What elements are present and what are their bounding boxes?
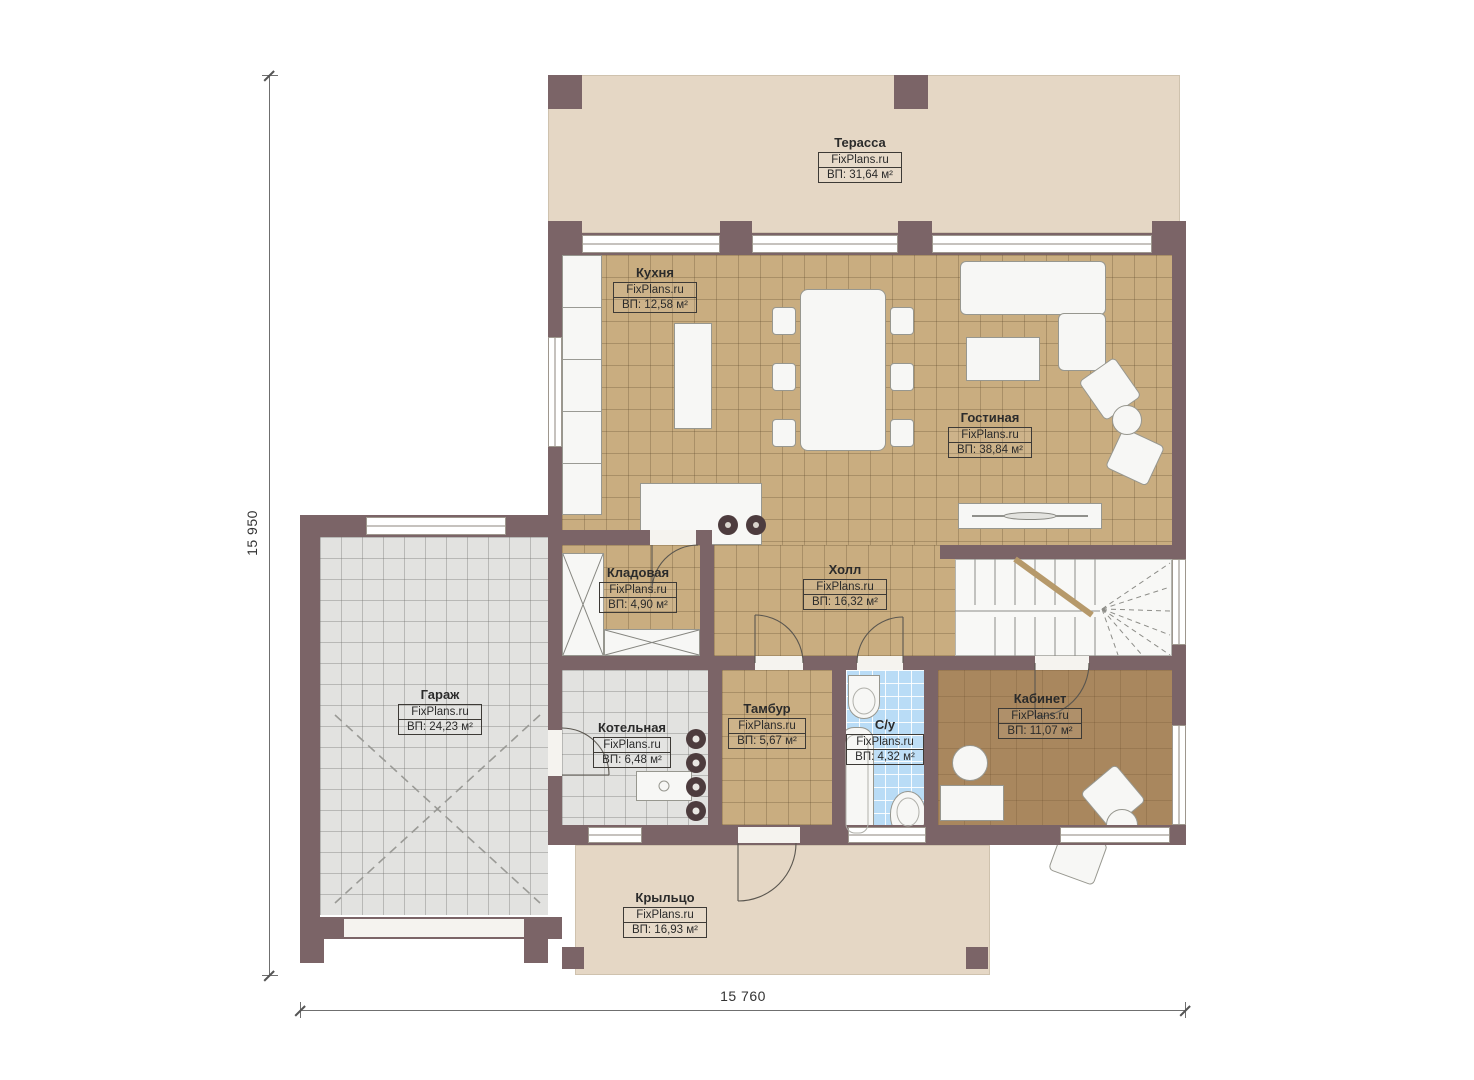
room-name: Терасса xyxy=(834,135,886,150)
room-area: ВП: 31,64 м² xyxy=(819,168,901,182)
pillar xyxy=(966,947,988,969)
room-name: Гостиная xyxy=(961,410,1020,425)
dining-table xyxy=(800,289,886,451)
brand-watermark: FixPlans.ru xyxy=(804,580,886,595)
pillar xyxy=(720,221,752,255)
garage-door-opening xyxy=(344,919,524,937)
kitchen-island xyxy=(674,323,712,429)
wall xyxy=(300,515,320,939)
dimension-label-left: 15 950 xyxy=(244,503,260,563)
dimension-line-left xyxy=(269,75,270,975)
room-area: ВП: 4,32 м² xyxy=(847,750,923,764)
pillar xyxy=(898,221,932,255)
door-opening xyxy=(548,730,562,776)
room-name: Котельная xyxy=(598,720,666,735)
room-label-terrace: Терасса FixPlans.ru ВП: 31,64 м² xyxy=(780,135,940,183)
brand-watermark: FixPlans.ru xyxy=(594,738,670,753)
dining-chair xyxy=(890,307,914,335)
stairs xyxy=(955,559,1172,656)
dining-chair xyxy=(772,419,796,447)
room-label-living: Гостиная FixPlans.ru ВП: 38,84 м² xyxy=(915,410,1065,458)
dining-chair xyxy=(890,363,914,391)
room-area: ВП: 24,23 м² xyxy=(399,720,481,734)
pillar xyxy=(548,221,582,255)
coffee-table xyxy=(966,337,1040,381)
room-label-pantry: Кладовая FixPlans.ru ВП: 4,90 м² xyxy=(568,565,708,613)
window xyxy=(752,235,898,253)
dining-chair xyxy=(772,363,796,391)
dining-chair xyxy=(890,419,914,447)
brand-watermark: FixPlans.ru xyxy=(949,428,1031,443)
brand-watermark: FixPlans.ru xyxy=(399,705,481,720)
room-name: Кабинет xyxy=(1014,691,1067,706)
door-opening xyxy=(755,656,803,670)
room-name: Гараж xyxy=(421,687,460,702)
room-label-bathroom: С/у FixPlans.ru ВП: 4,32 м² xyxy=(828,717,942,765)
window xyxy=(548,337,562,447)
window xyxy=(932,235,1152,253)
door-opening xyxy=(857,656,903,670)
room-area: ВП: 16,93 м² xyxy=(624,923,706,937)
pillar xyxy=(562,947,584,969)
brand-watermark: FixPlans.ru xyxy=(624,908,706,923)
room-area: ВП: 5,67 м² xyxy=(729,734,805,748)
room-name: Кладовая xyxy=(607,565,669,580)
brand-watermark: FixPlans.ru xyxy=(847,735,923,750)
room-name: Кухня xyxy=(636,265,674,280)
wall xyxy=(940,545,1186,559)
pillar xyxy=(300,939,324,963)
floor-plan: Терасса FixPlans.ru ВП: 31,64 м² Кухня F… xyxy=(300,75,1186,975)
window xyxy=(366,517,506,535)
brand-watermark: FixPlans.ru xyxy=(819,153,901,168)
dimension-line-bottom xyxy=(300,1010,1186,1011)
brand-watermark: FixPlans.ru xyxy=(729,719,805,734)
window xyxy=(582,235,720,253)
room-name: С/у xyxy=(875,717,895,732)
desk xyxy=(940,785,1004,821)
room-area: ВП: 16,32 м² xyxy=(804,595,886,609)
window xyxy=(1172,559,1186,645)
wardrobe-hatch xyxy=(604,629,700,656)
room-area: ВП: 4,90 м² xyxy=(600,598,676,612)
pillar xyxy=(1152,221,1186,255)
toilet xyxy=(848,675,880,719)
room-label-vestibule: Тамбур FixPlans.ru ВП: 5,67 м² xyxy=(702,701,832,749)
tv-console xyxy=(958,503,1102,529)
dimension-label-bottom: 15 760 xyxy=(713,988,773,1004)
room-name: Холл xyxy=(829,562,862,577)
room-label-hall: Холл FixPlans.ru ВП: 16,32 м² xyxy=(770,562,920,610)
room-area: ВП: 11,07 м² xyxy=(999,724,1080,738)
sofa xyxy=(960,261,1106,315)
pillar xyxy=(894,75,928,109)
window xyxy=(848,827,926,843)
brand-watermark: FixPlans.ru xyxy=(999,709,1080,724)
side-table xyxy=(1112,405,1142,435)
room-label-garage: Гараж FixPlans.ru ВП: 24,23 м² xyxy=(365,687,515,735)
brand-watermark: FixPlans.ru xyxy=(600,583,676,598)
room-area: ВП: 12,58 м² xyxy=(614,298,696,312)
room-name: Крыльцо xyxy=(635,890,694,905)
brand-watermark: FixPlans.ru xyxy=(614,283,696,298)
window xyxy=(1172,725,1186,825)
room-label-porch: Крыльцо FixPlans.ru ВП: 16,93 м² xyxy=(590,890,740,938)
boiler-counter xyxy=(636,771,692,801)
pillar xyxy=(524,939,548,963)
room-area: ВП: 38,84 м² xyxy=(949,443,1031,457)
pillar xyxy=(548,75,582,109)
dining-chair xyxy=(772,307,796,335)
room-label-kitchen: Кухня FixPlans.ru ВП: 12,58 м² xyxy=(580,265,730,313)
window xyxy=(588,827,642,843)
room-name: Тамбур xyxy=(743,701,790,716)
window xyxy=(1060,827,1170,843)
office-chair xyxy=(952,745,988,781)
door-opening xyxy=(650,530,696,545)
room-label-boiler: Котельная FixPlans.ru ВП: 6,48 м² xyxy=(562,720,702,768)
room-label-office: Кабинет FixPlans.ru ВП: 11,07 м² xyxy=(965,691,1115,739)
front-door-opening xyxy=(738,827,800,843)
floor-plan-page: Терасса FixPlans.ru ВП: 31,64 м² Кухня F… xyxy=(0,0,1474,1080)
room-area: ВП: 6,48 м² xyxy=(594,753,670,767)
door-opening xyxy=(1035,656,1089,670)
sofa-chaise xyxy=(1058,313,1106,371)
